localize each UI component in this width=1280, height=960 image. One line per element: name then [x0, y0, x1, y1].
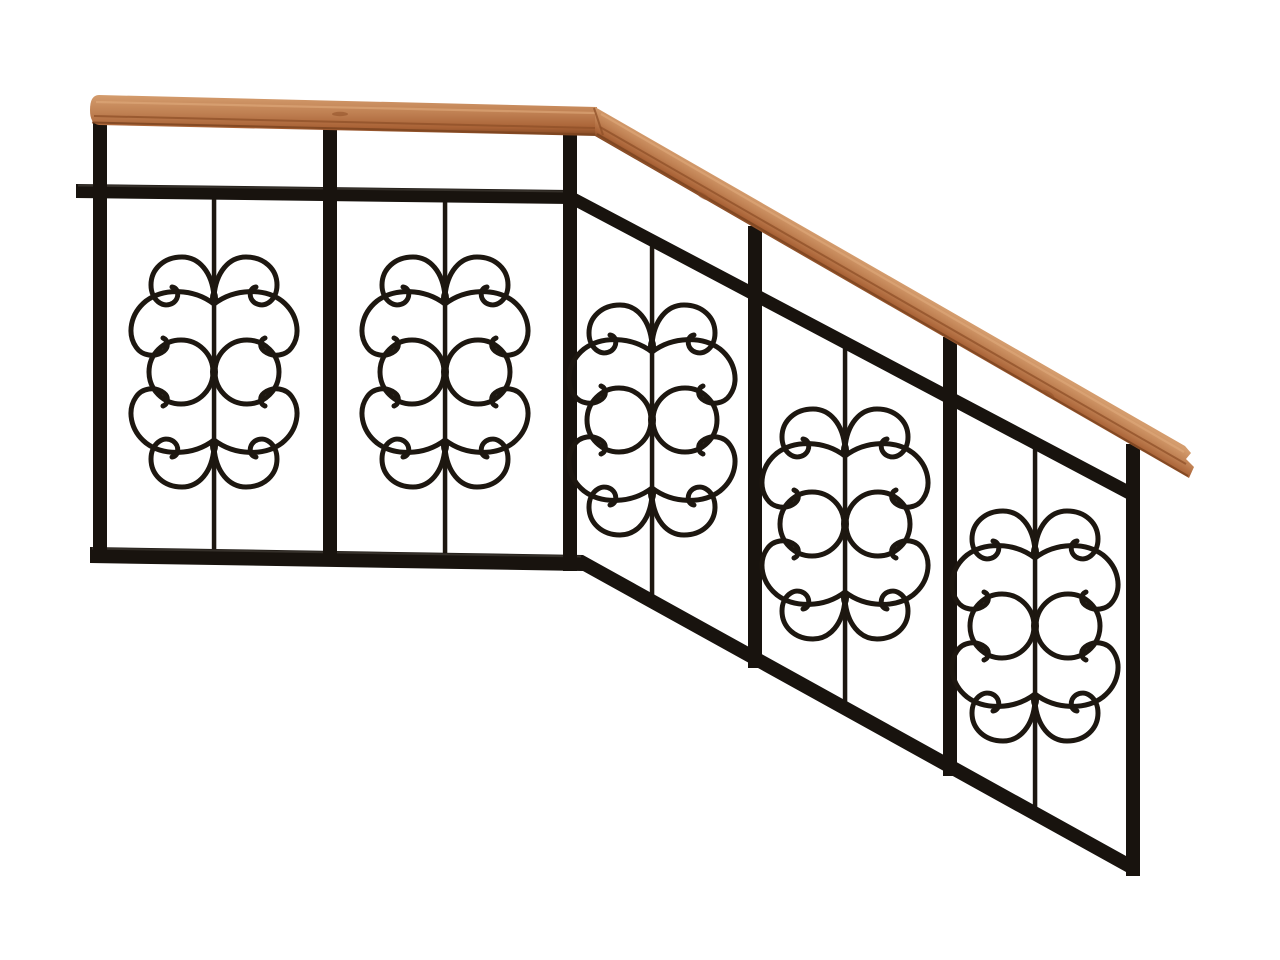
post-1: [93, 122, 107, 563]
scroll-ornament-panel-2: [362, 257, 528, 487]
post-3: [563, 135, 577, 571]
scroll-ornament-panel-3: [569, 305, 735, 535]
post-2: [323, 126, 337, 563]
post-5: [943, 337, 957, 776]
wood-knot: [332, 112, 348, 116]
post-6: [1126, 444, 1140, 876]
handrail-grain-highlight-sloped: [601, 114, 1184, 452]
product-photo: [0, 0, 1280, 960]
scroll-ornament-panel-4: [762, 409, 928, 639]
post-4: [748, 226, 762, 668]
frame-rails: [76, 184, 1140, 872]
scroll-ornament-panel-1: [131, 257, 297, 487]
scroll-ornament-panel-5: [952, 511, 1118, 741]
railing-photo: [0, 0, 1280, 960]
